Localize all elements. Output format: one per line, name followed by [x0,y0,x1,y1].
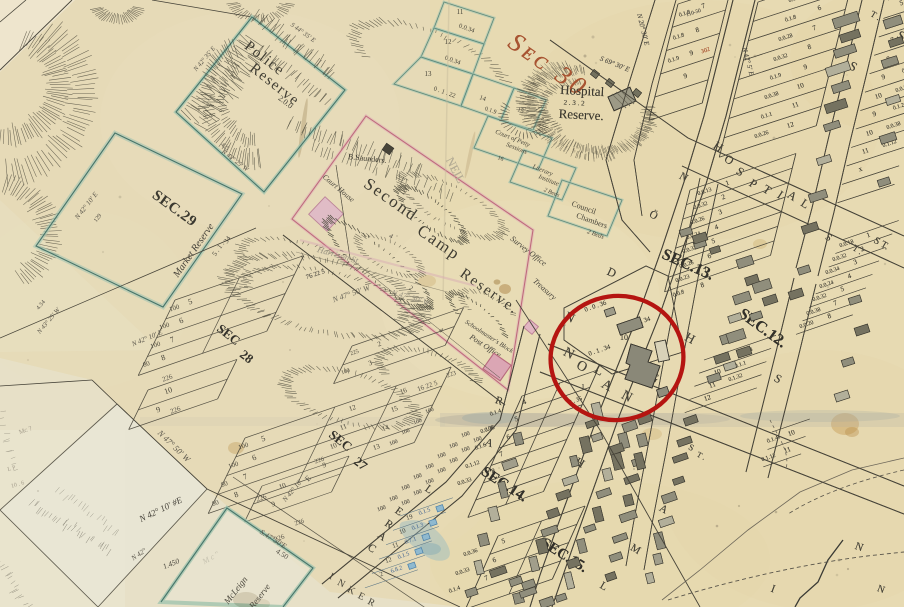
svg-text:13: 13 [425,70,433,78]
svg-text:11: 11 [457,8,464,16]
svg-text:Hospital: Hospital [560,82,605,99]
svg-text:Reserve.: Reserve. [558,106,604,123]
